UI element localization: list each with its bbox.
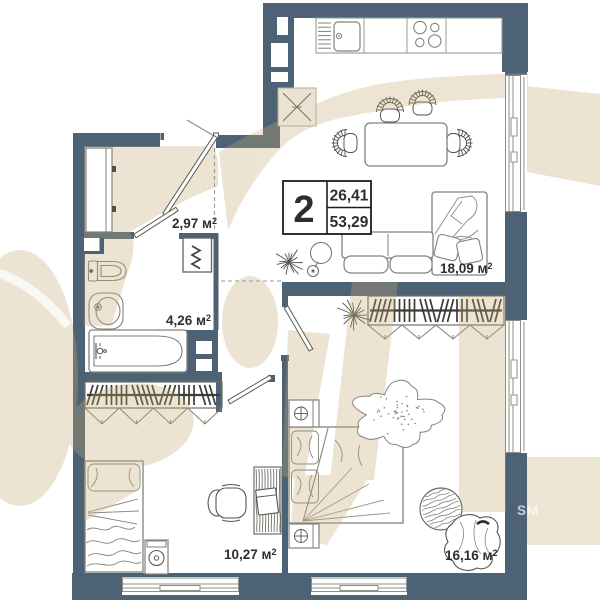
svg-text:10,27 м2: 10,27 м2 [224, 547, 277, 562]
svg-text:2,97 м2: 2,97 м2 [172, 216, 217, 231]
svg-text:16,16 м2: 16,16 м2 [445, 548, 498, 563]
svg-text:53,29: 53,29 [330, 214, 369, 231]
svg-text:26,41: 26,41 [330, 188, 369, 205]
svg-text:SM: SM [517, 503, 539, 518]
svg-text:4,26 м2: 4,26 м2 [166, 313, 211, 328]
svg-text:2: 2 [293, 189, 314, 231]
svg-text:18,09 м2: 18,09 м2 [440, 261, 493, 276]
